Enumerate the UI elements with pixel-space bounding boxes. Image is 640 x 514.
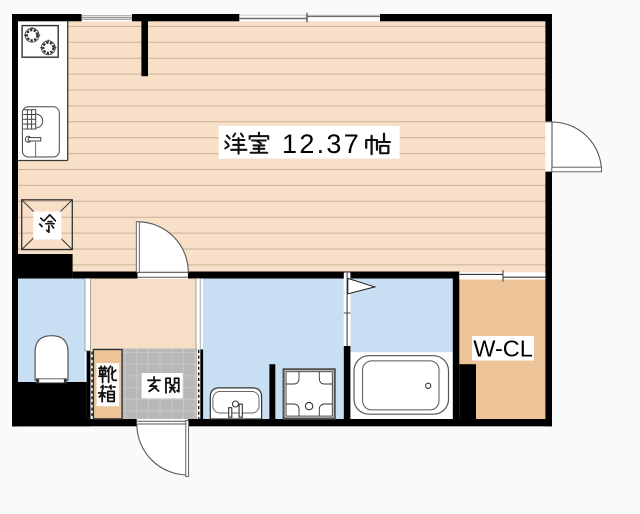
svg-text:W-CL: W-CL [473,336,533,362]
svg-text:12.37: 12.37 [282,129,361,159]
